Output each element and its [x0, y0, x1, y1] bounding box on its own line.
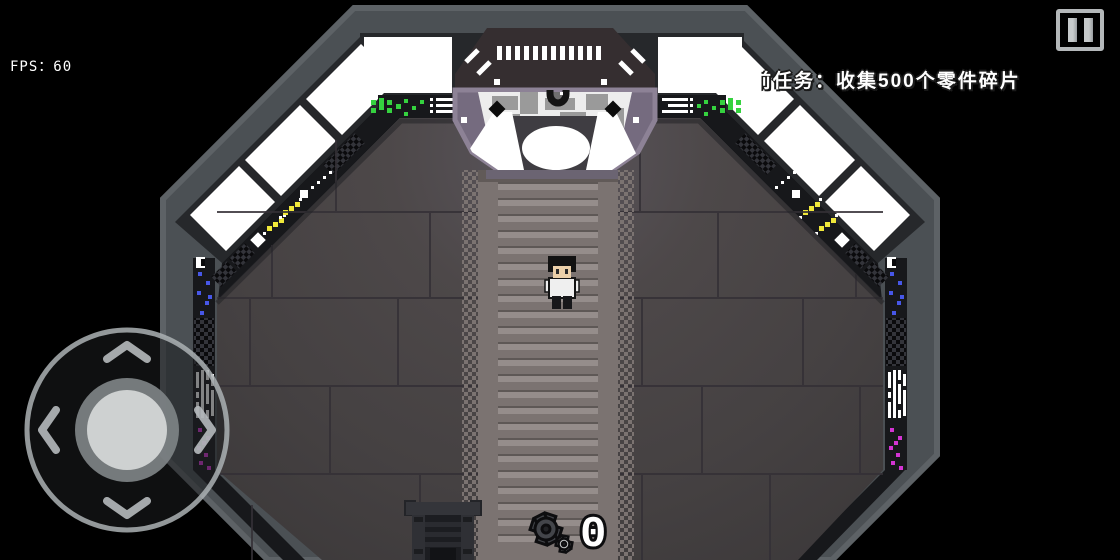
player-leg [552, 296, 561, 309]
platform-lip [486, 170, 618, 179]
fps-counter: FPS：60 [10, 56, 72, 76]
parts-count-value: 0 [580, 510, 606, 560]
walkway-stripes [498, 182, 598, 542]
machine [404, 500, 482, 560]
joystick-graphic [24, 327, 230, 533]
player-eye [556, 269, 559, 274]
mission-text-body: 任务：收集500个零件碎片 [773, 71, 1021, 92]
light-pool [522, 126, 590, 170]
walkway-dither-edge [618, 170, 634, 560]
pause-icon [1068, 18, 1077, 42]
walkway [462, 170, 634, 560]
joystick-knob[interactable] [87, 390, 167, 470]
game-screen: 0 FPS：60 前任务：收集500个零件碎片 [0, 0, 1120, 560]
player-body [549, 278, 575, 298]
mission-text-prefix: 前 [752, 66, 773, 93]
pause-icon [1084, 18, 1093, 42]
player-leg [563, 296, 572, 309]
player-face [553, 264, 571, 278]
mission-text: 前任务：收集500个零件碎片 [752, 66, 1021, 93]
player-eye [565, 269, 568, 274]
pause-button[interactable] [1056, 9, 1104, 51]
airlock [455, 28, 655, 179]
platform-interior [456, 86, 644, 170]
virtual-joystick[interactable] [24, 327, 230, 533]
